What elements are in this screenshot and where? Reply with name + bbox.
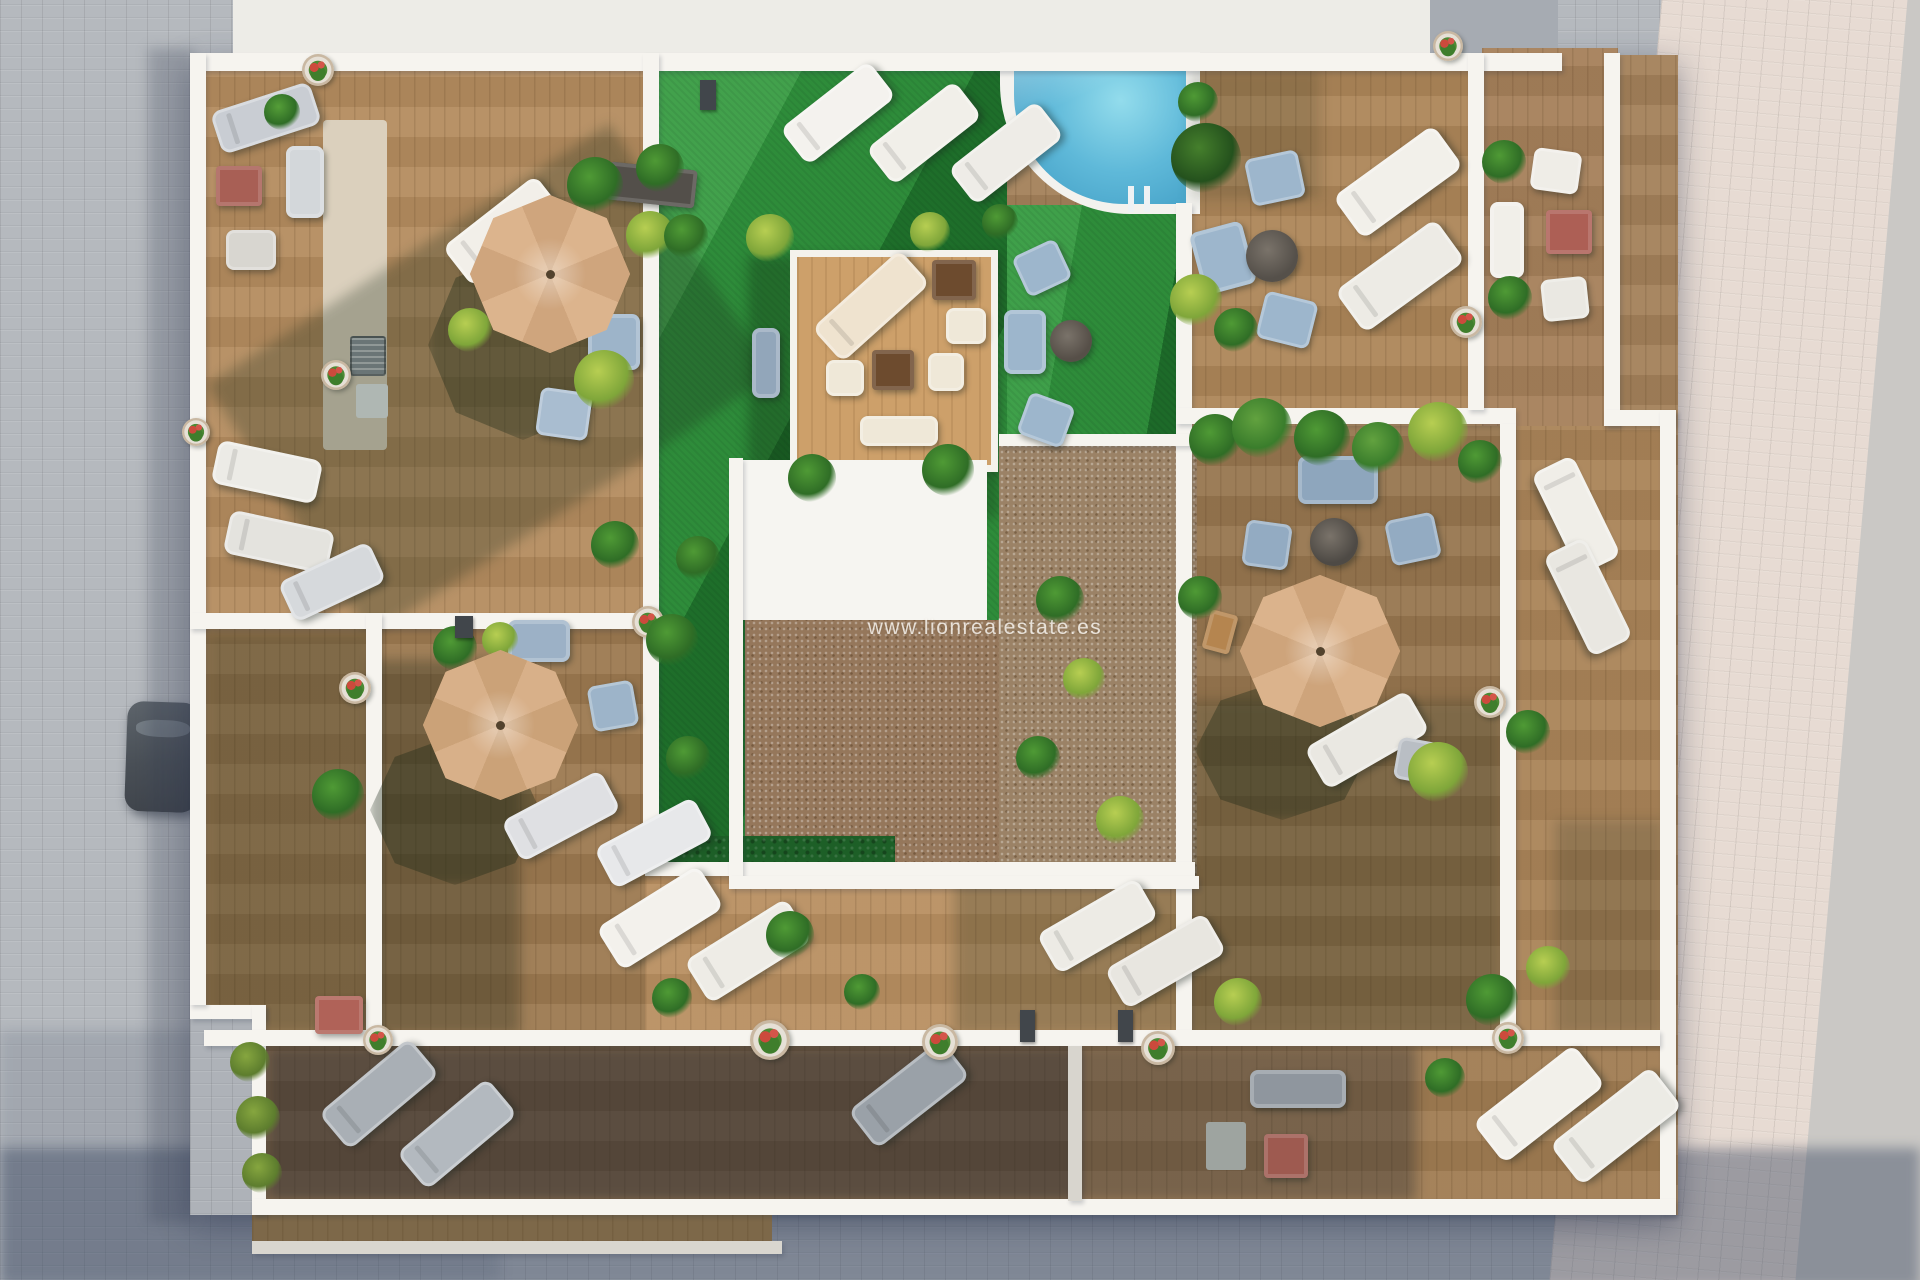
flower-pot xyxy=(363,1025,393,1055)
palm-plant xyxy=(230,1042,270,1082)
bush xyxy=(844,974,880,1010)
parapet-wall xyxy=(645,862,1195,876)
palm-plant xyxy=(1526,946,1570,990)
bush xyxy=(636,144,684,192)
bush xyxy=(574,350,634,410)
bush xyxy=(1016,736,1060,780)
flower-pot xyxy=(750,1020,790,1060)
bush xyxy=(1294,410,1350,466)
flower-pot xyxy=(1492,1022,1524,1054)
umbrella xyxy=(1240,575,1400,727)
armchair xyxy=(586,679,639,732)
palm-plant xyxy=(1408,742,1468,802)
bush xyxy=(664,214,708,258)
parapet-wall xyxy=(1468,53,1484,410)
scene-layer xyxy=(0,0,1920,1280)
outdoor-sofa xyxy=(752,328,780,398)
parapet-wall xyxy=(1176,203,1192,1036)
bush xyxy=(1214,308,1258,352)
fire-pit-table xyxy=(1310,518,1358,566)
palm-plant xyxy=(910,212,950,252)
flower-pot xyxy=(1141,1031,1175,1065)
armchair xyxy=(1529,147,1582,195)
bush xyxy=(788,454,836,502)
bush xyxy=(982,204,1018,240)
palm-plant xyxy=(1488,276,1532,320)
bush xyxy=(1506,710,1550,754)
fire-table xyxy=(1546,210,1592,254)
bench-cushion xyxy=(860,416,938,446)
lamp-post xyxy=(1020,1010,1035,1042)
seat-cushion xyxy=(826,360,864,396)
flower-pot xyxy=(302,54,334,86)
outdoor-sofa xyxy=(1490,202,1524,278)
lamp-post xyxy=(455,616,473,638)
bush xyxy=(1466,974,1518,1026)
seat-cushion xyxy=(946,308,986,344)
bush xyxy=(1425,1058,1465,1098)
terrace-shadow xyxy=(1555,820,1663,1034)
bush xyxy=(448,308,492,352)
flower-pot xyxy=(182,418,210,446)
bush xyxy=(766,911,814,959)
bush xyxy=(666,736,710,780)
armchair xyxy=(1540,276,1590,323)
parapet-wall xyxy=(729,458,743,882)
palm-plant xyxy=(746,214,794,262)
flower-pot xyxy=(1474,686,1506,718)
flower-pot xyxy=(321,360,351,390)
parapet-wall xyxy=(1068,1046,1082,1201)
parapet-wall xyxy=(190,53,1562,71)
bush xyxy=(1458,440,1502,484)
parapet-wall xyxy=(190,613,660,629)
building-shadow xyxy=(148,48,194,1223)
terrace-shadow xyxy=(1076,1046,1416,1201)
umbrella xyxy=(423,650,578,800)
armchair xyxy=(226,230,276,270)
bush xyxy=(1178,82,1218,122)
side-table xyxy=(872,350,914,390)
armchair xyxy=(1241,519,1293,571)
parapet-wall xyxy=(190,53,206,1005)
bush xyxy=(922,444,974,496)
bush xyxy=(1063,658,1105,700)
watermark-text: www.lionrealestate.es xyxy=(845,616,1125,640)
palm-plant xyxy=(1214,978,1262,1026)
skylight xyxy=(1206,1122,1246,1170)
aerial-render: www.lionrealestate.es xyxy=(0,0,1920,1280)
bush xyxy=(1096,796,1144,844)
palm-tree xyxy=(1171,123,1241,193)
flower-pot xyxy=(339,672,371,704)
coffee-table xyxy=(1246,230,1298,282)
bush xyxy=(264,94,300,130)
umbrella xyxy=(470,195,630,353)
bush xyxy=(1170,274,1222,326)
fire-table xyxy=(1264,1134,1308,1178)
outdoor-sofa xyxy=(1250,1070,1346,1108)
flower-pot xyxy=(1450,306,1482,338)
palm-plant xyxy=(236,1096,280,1140)
flower-pot xyxy=(922,1024,958,1060)
outdoor-sofa xyxy=(1004,310,1046,374)
roof-edge-white xyxy=(233,0,1430,55)
fire-table xyxy=(315,996,363,1034)
bush xyxy=(312,769,364,821)
lamp-post xyxy=(1118,1010,1133,1042)
bush xyxy=(1178,576,1222,620)
pool-ladder xyxy=(1128,186,1134,212)
bush xyxy=(567,157,623,213)
parapet-wall xyxy=(252,1199,1676,1215)
parapet-wall xyxy=(1604,53,1620,426)
bush xyxy=(646,614,698,666)
coffee-table xyxy=(1050,320,1092,362)
parapet-wall xyxy=(252,1241,782,1254)
side-table xyxy=(932,260,976,300)
palm-plant xyxy=(242,1153,282,1193)
seat-cushion xyxy=(928,353,964,391)
palm-plant xyxy=(1482,140,1526,184)
bush xyxy=(1352,422,1404,474)
bush xyxy=(652,978,692,1018)
bush xyxy=(591,521,639,569)
bush xyxy=(676,536,720,580)
outdoor-sofa xyxy=(286,146,324,218)
fire-table xyxy=(216,166,262,206)
shower-post xyxy=(700,80,716,110)
flower-pot xyxy=(1433,31,1463,61)
bush xyxy=(1232,398,1292,458)
pool-ladder xyxy=(1144,186,1150,212)
